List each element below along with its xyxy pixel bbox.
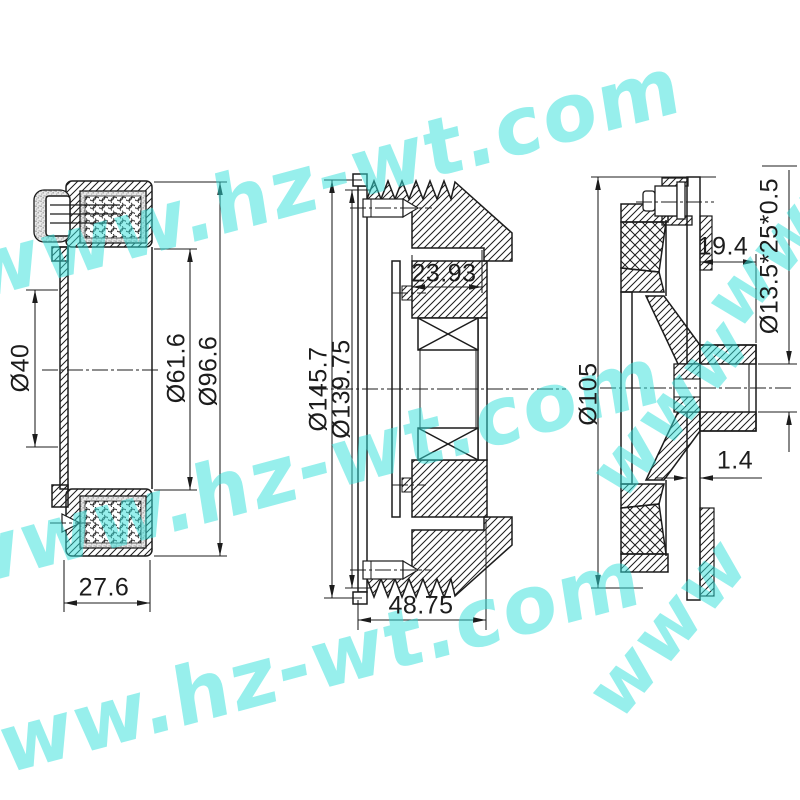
- rubber-damper-bottom: [621, 504, 666, 554]
- pulley-groove-ring-bottom: [367, 517, 512, 597]
- plate-ring-cap-bottom: [621, 554, 668, 572]
- pulley-section-view: [312, 174, 566, 630]
- coil-winding-top: [80, 191, 146, 243]
- pulley-hub-top: [412, 261, 487, 318]
- coil-back-wall: [60, 247, 68, 489]
- rubber-damper-top: [621, 222, 666, 272]
- pulley-groove-ring-top: [367, 181, 512, 261]
- field-coil-section-view: [26, 181, 227, 612]
- clutch-assembly-drawing: [0, 0, 800, 800]
- technical-drawing-page: www.hz-wt.com www.hz-wt.com www.hz-wt.co…: [0, 0, 800, 800]
- clutch-plate-section-view: [591, 166, 797, 600]
- pulley-hub-bottom: [412, 460, 487, 517]
- coil-winding-bottom: [80, 496, 146, 548]
